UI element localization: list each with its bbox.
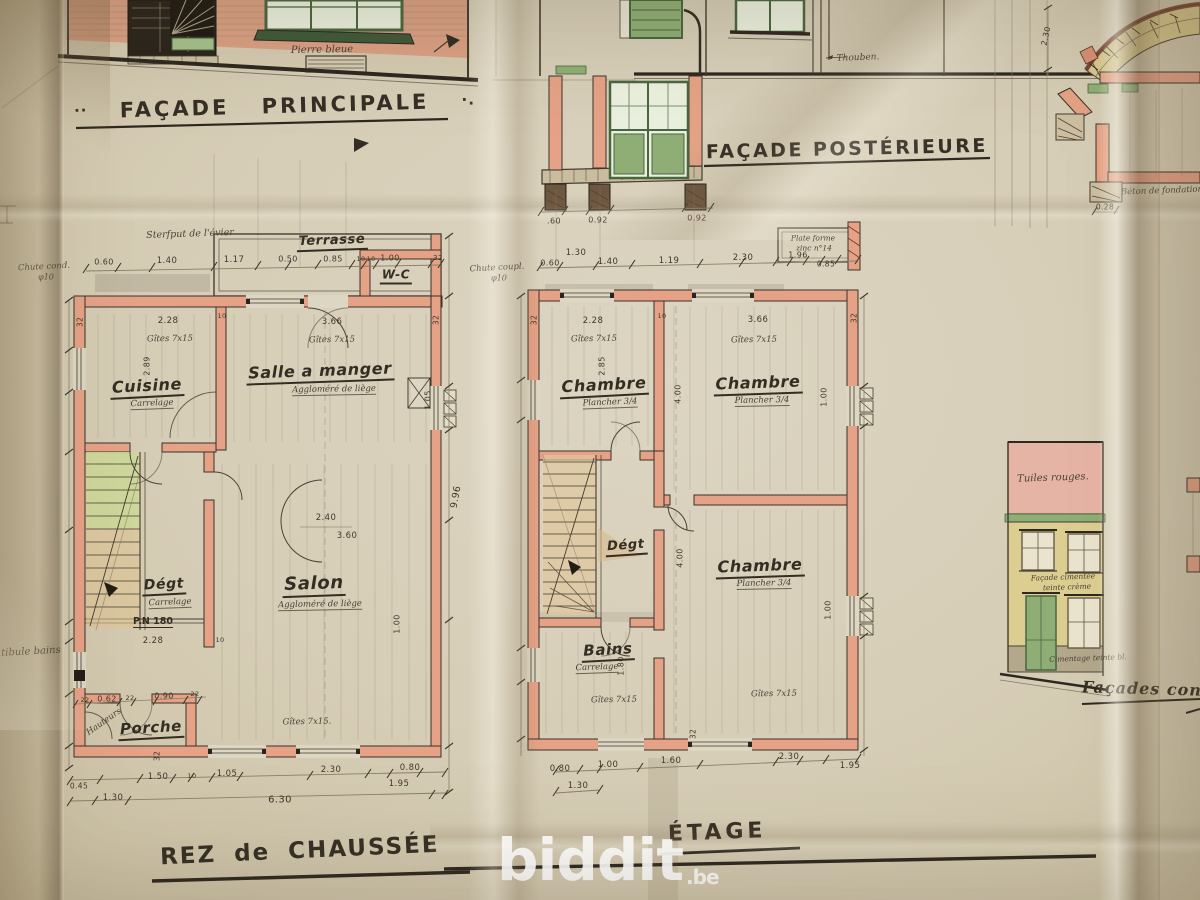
plan-photo: ·· FAÇADE PRINCIPALE ·. FAÇADE POSTÉRIEU… bbox=[0, 0, 1200, 900]
plan-rez-de-chaussee bbox=[65, 154, 456, 806]
plan-etage bbox=[517, 186, 873, 796]
title-dots-left: ·· bbox=[74, 101, 88, 119]
biddit-watermark: biddit.be bbox=[497, 826, 719, 894]
title-facades-laterales: Façades con bbox=[1082, 677, 1200, 699]
drawing-canvas bbox=[0, 0, 1200, 900]
elevation-facade-laterale bbox=[1000, 442, 1108, 696]
biddit-watermark-tld: .be bbox=[686, 865, 718, 889]
biddit-watermark-text: biddit bbox=[497, 826, 683, 894]
title-dots-right: ·. bbox=[461, 90, 475, 108]
elevation-facade-posterieure bbox=[492, 0, 1118, 228]
